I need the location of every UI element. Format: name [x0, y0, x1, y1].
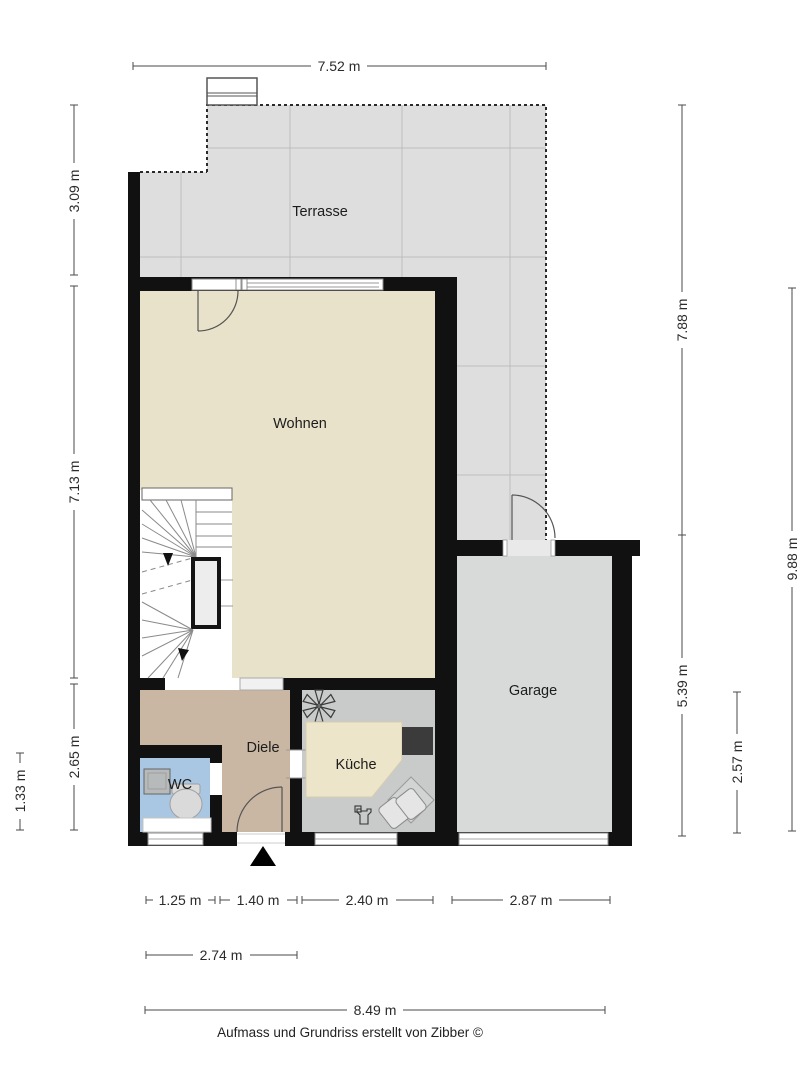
- terrace-planter: [207, 78, 257, 105]
- garage-door-opening: [506, 540, 552, 556]
- svg-text:2.74 m: 2.74 m: [200, 947, 243, 963]
- room-label-diele: Diele: [246, 740, 279, 756]
- svg-text:1.25 m: 1.25 m: [159, 892, 202, 908]
- svg-text:9.88 m: 9.88 m: [784, 538, 800, 581]
- floorplan-svg: Terrasse Wohnen Garage Diele Küche WC 7.…: [0, 0, 810, 1080]
- floorplan-page: Terrasse Wohnen Garage Diele Küche WC 7.…: [0, 0, 810, 1080]
- room-label-garage: Garage: [509, 683, 557, 699]
- svg-text:7.13 m: 7.13 m: [66, 461, 82, 504]
- staircase: [140, 488, 233, 678]
- wc-sill: [143, 818, 211, 832]
- svg-text:7.88 m: 7.88 m: [674, 299, 690, 342]
- wohnen-diele-threshold: [240, 678, 283, 690]
- kueche-door-opening: [290, 750, 302, 778]
- room-label-wc: WC: [168, 777, 192, 793]
- svg-text:2.57 m: 2.57 m: [729, 741, 745, 784]
- svg-text:2.65 m: 2.65 m: [66, 736, 82, 779]
- svg-text:3.09 m: 3.09 m: [66, 170, 82, 213]
- garage-gate: [459, 833, 608, 845]
- room-label-wohnen: Wohnen: [273, 416, 327, 432]
- wc-window: [148, 833, 203, 845]
- svg-text:2.87 m: 2.87 m: [510, 892, 553, 908]
- svg-text:2.40 m: 2.40 m: [346, 892, 389, 908]
- svg-text:5.39 m: 5.39 m: [674, 665, 690, 708]
- wohnen-window: [192, 279, 383, 290]
- wc-door-opening: [210, 763, 222, 795]
- svg-text:1.33 m: 1.33 m: [12, 770, 28, 813]
- room-label-kueche: Küche: [335, 757, 376, 773]
- room-label-terrasse: Terrasse: [292, 204, 348, 220]
- footer-credit: Aufmass und Grundriss erstellt von Zibbe…: [217, 1025, 483, 1040]
- kueche-window: [315, 833, 397, 845]
- svg-text:7.52 m: 7.52 m: [318, 58, 361, 74]
- stair-shaft: [193, 559, 219, 627]
- svg-text:8.49 m: 8.49 m: [354, 1002, 397, 1018]
- svg-text:1.40 m: 1.40 m: [237, 892, 280, 908]
- kitchen-counter-block: [402, 727, 433, 755]
